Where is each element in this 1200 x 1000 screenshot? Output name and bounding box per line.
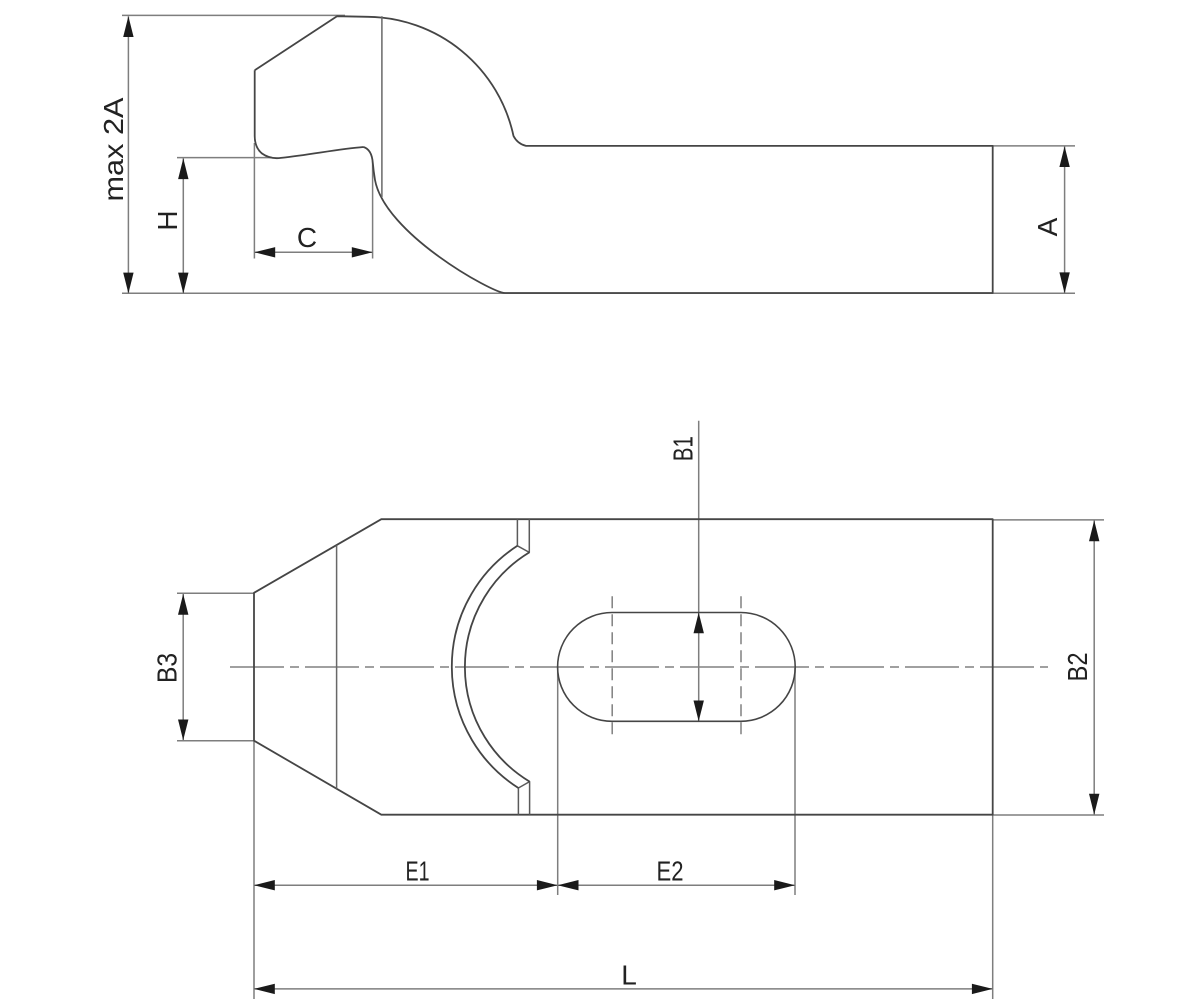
svg-text:E2: E2 xyxy=(657,856,684,887)
svg-text:A: A xyxy=(1032,217,1063,236)
svg-text:B3: B3 xyxy=(152,653,183,683)
svg-text:C: C xyxy=(297,222,317,253)
svg-text:H: H xyxy=(152,210,183,230)
svg-text:max 2A: max 2A xyxy=(98,97,129,201)
svg-text:E1: E1 xyxy=(406,856,430,887)
svg-text:B2: B2 xyxy=(1062,653,1093,682)
svg-text:L: L xyxy=(621,960,637,991)
svg-text:B1: B1 xyxy=(668,436,699,461)
